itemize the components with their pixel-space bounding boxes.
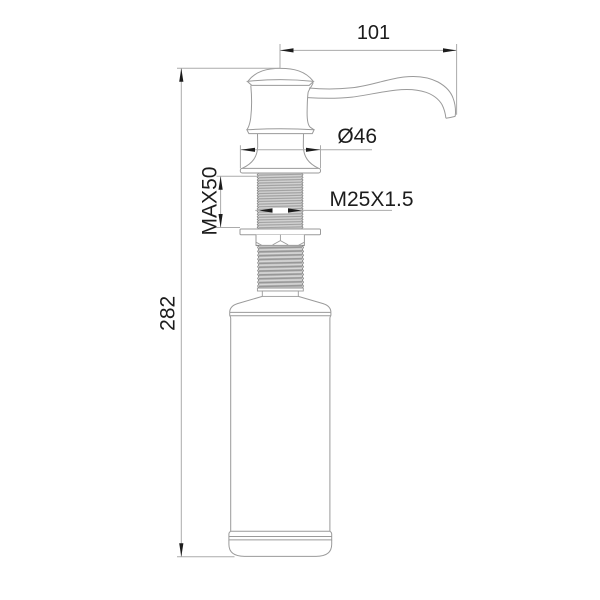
svg-text:101: 101 bbox=[357, 22, 390, 44]
svg-text:282: 282 bbox=[156, 296, 179, 331]
svg-text:MAX50: MAX50 bbox=[199, 167, 222, 236]
svg-text:Ø46: Ø46 bbox=[337, 125, 377, 148]
svg-text:M25X1.5: M25X1.5 bbox=[329, 188, 413, 211]
